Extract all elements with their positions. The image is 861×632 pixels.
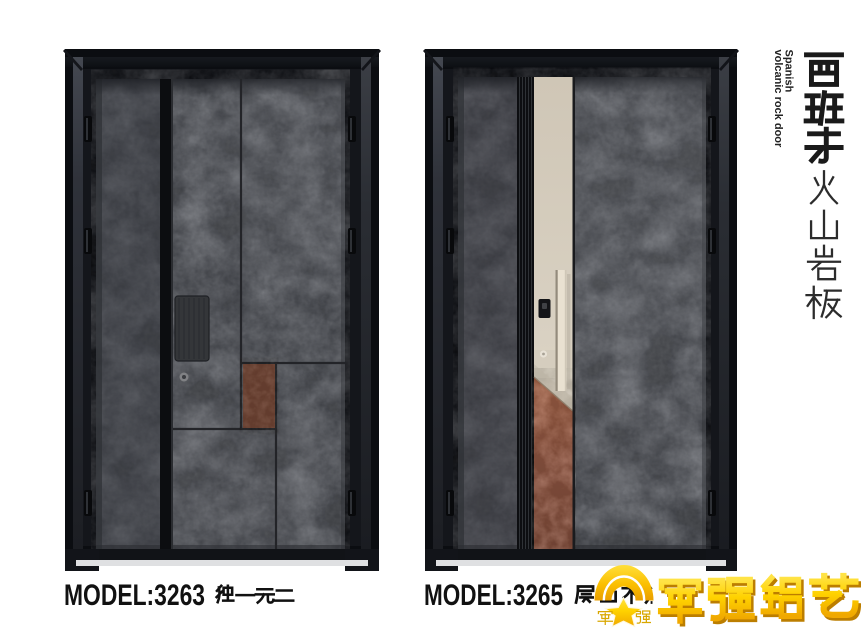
svg-text:volcanic rock door: volcanic rock door: [772, 50, 784, 149]
svg-text:MODEL:3265: MODEL:3265: [424, 579, 563, 612]
svg-text:MODEL:3263: MODEL:3263: [64, 579, 205, 612]
